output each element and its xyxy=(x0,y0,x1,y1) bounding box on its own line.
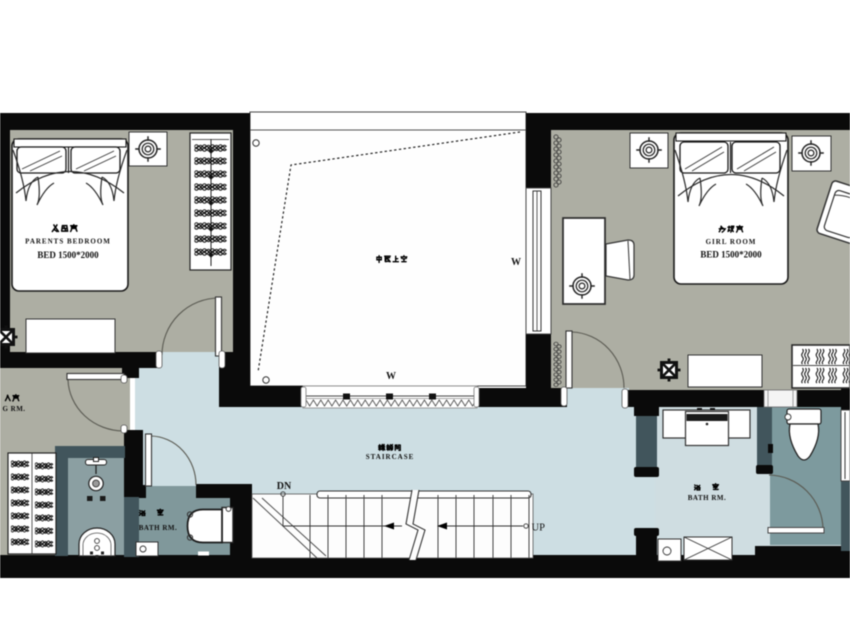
svg-text:UP: UP xyxy=(532,523,546,534)
svg-text:STAIRCASE: STAIRCASE xyxy=(366,453,415,461)
svg-text:BED 1500*2000: BED 1500*2000 xyxy=(37,250,99,260)
svg-text:GIRL ROOM: GIRL ROOM xyxy=(706,238,757,246)
svg-text:G RM.: G RM. xyxy=(2,405,25,413)
svg-text:W: W xyxy=(386,371,396,382)
svg-text:BED 1500*2000: BED 1500*2000 xyxy=(700,250,762,260)
svg-text:W: W xyxy=(511,257,521,268)
svg-text:BATH RM.: BATH RM. xyxy=(688,494,726,502)
svg-text:BATH RM.: BATH RM. xyxy=(139,524,177,532)
svg-text:DN: DN xyxy=(277,481,292,492)
svg-text:PARENTS BEDROOM: PARENTS BEDROOM xyxy=(25,238,111,246)
